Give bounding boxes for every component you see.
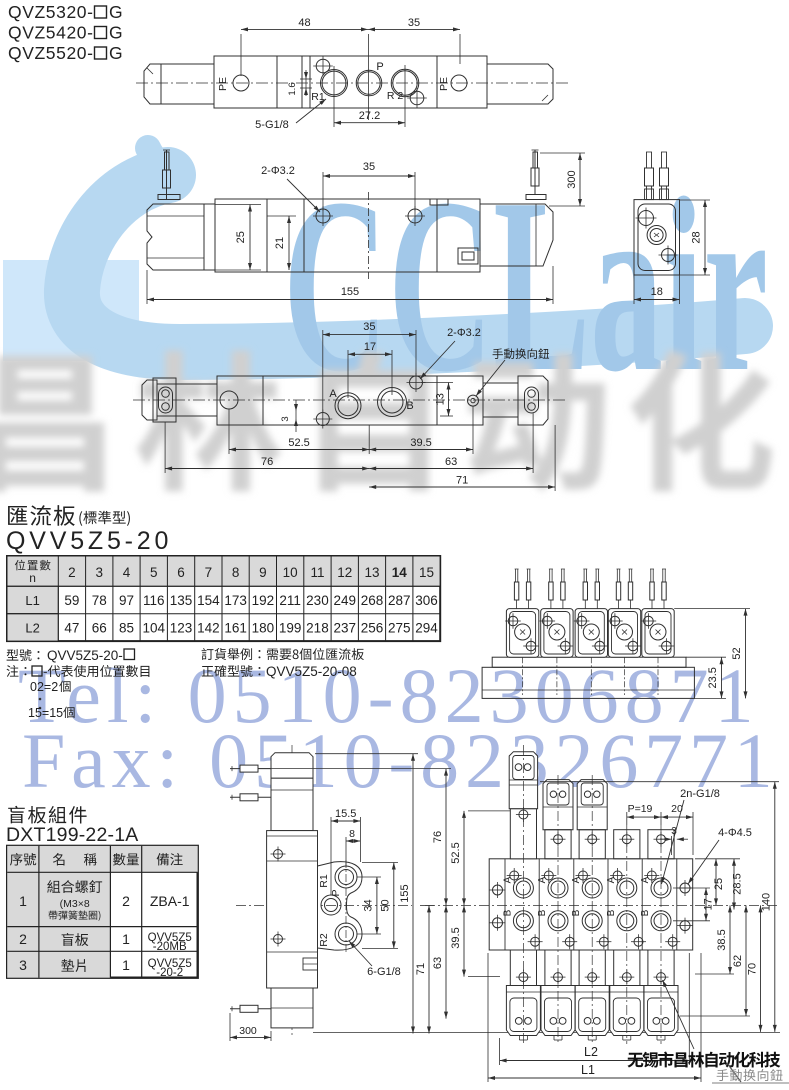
svg-text:76: 76 <box>261 456 273 468</box>
svg-text:A: A <box>502 876 513 883</box>
svg-text:249: 249 <box>333 593 356 608</box>
svg-text:17: 17 <box>364 341 376 353</box>
svg-text:1: 1 <box>122 931 130 947</box>
svg-text:R 2: R 2 <box>387 90 404 102</box>
svg-text:R2: R2 <box>318 933 330 947</box>
svg-text:B: B <box>571 909 582 916</box>
svg-text:2-Φ3.2: 2-Φ3.2 <box>447 327 481 339</box>
svg-text:G: G <box>109 23 123 43</box>
svg-text:173: 173 <box>224 593 247 608</box>
svg-text:35: 35 <box>363 161 375 173</box>
svg-text:180: 180 <box>252 620 275 635</box>
svg-text:1: 1 <box>122 957 130 973</box>
svg-text:ZBA-1: ZBA-1 <box>150 893 190 909</box>
svg-text:39.5: 39.5 <box>450 927 462 948</box>
svg-text:2n-G1/8: 2n-G1/8 <box>680 788 720 800</box>
svg-text:(M3×8: (M3×8 <box>60 898 90 910</box>
svg-text:17: 17 <box>703 898 715 910</box>
svg-text:71: 71 <box>415 963 427 975</box>
svg-text:QVZ5420-: QVZ5420- <box>8 23 94 43</box>
svg-text:275: 275 <box>388 620 411 635</box>
svg-text:G: G <box>109 2 123 22</box>
svg-text:A: A <box>640 876 651 883</box>
svg-text:104: 104 <box>143 620 166 635</box>
svg-text:123: 123 <box>170 620 193 635</box>
svg-text:34: 34 <box>363 899 375 911</box>
svg-text:70: 70 <box>747 963 759 975</box>
svg-text:52: 52 <box>731 647 743 659</box>
svg-text:62: 62 <box>732 955 744 967</box>
svg-text:2: 2 <box>19 931 27 947</box>
svg-text:5-G1/8: 5-G1/8 <box>255 119 289 131</box>
svg-text:P: P <box>330 889 342 896</box>
svg-text:47: 47 <box>64 620 79 635</box>
svg-text:B: B <box>502 909 513 916</box>
svg-text:P: P <box>376 61 383 73</box>
svg-text:B: B <box>537 909 548 916</box>
svg-text:Fax: 0510-82326771: Fax: 0510-82326771 <box>22 717 779 804</box>
svg-text:199: 199 <box>279 620 302 635</box>
svg-text:6-G1/8: 6-G1/8 <box>367 966 401 978</box>
svg-text:78: 78 <box>92 593 107 608</box>
svg-text:8: 8 <box>349 828 355 840</box>
svg-text:230: 230 <box>306 593 329 608</box>
svg-text:-20MB: -20MB <box>153 941 187 953</box>
svg-text:35: 35 <box>408 17 420 29</box>
svg-text:L1: L1 <box>25 593 39 608</box>
svg-text:QVV5Z5-20-: QVV5Z5-20- <box>47 648 123 663</box>
svg-text:63: 63 <box>445 456 457 468</box>
svg-text:14: 14 <box>392 565 408 580</box>
svg-text:211: 211 <box>279 593 301 608</box>
svg-text:4-Φ4.5: 4-Φ4.5 <box>718 827 752 839</box>
svg-text:25: 25 <box>713 878 725 890</box>
svg-text:155: 155 <box>341 286 359 298</box>
svg-text:256: 256 <box>361 620 384 635</box>
svg-text:15.5: 15.5 <box>335 808 356 820</box>
svg-text:21: 21 <box>274 237 286 249</box>
svg-text:7: 7 <box>205 565 213 580</box>
svg-text:140: 140 <box>761 893 773 911</box>
svg-text:154: 154 <box>197 593 220 608</box>
svg-text:48: 48 <box>298 17 310 29</box>
svg-text:35: 35 <box>363 321 375 333</box>
svg-text:G: G <box>109 43 123 63</box>
svg-text:161: 161 <box>224 620 247 635</box>
svg-text:A: A <box>537 876 548 883</box>
svg-text:15: 15 <box>419 565 434 580</box>
svg-text:155: 155 <box>399 884 411 902</box>
svg-text:B: B <box>640 909 651 916</box>
svg-text:02=2: 02=2 <box>30 680 58 694</box>
svg-text:300: 300 <box>566 170 578 188</box>
svg-text:39.5: 39.5 <box>410 437 431 449</box>
svg-text:50: 50 <box>380 899 392 911</box>
svg-text:4: 4 <box>123 565 131 580</box>
svg-text:116: 116 <box>143 593 165 608</box>
svg-text:2: 2 <box>68 565 76 580</box>
svg-text:52.5: 52.5 <box>450 842 462 863</box>
svg-text:A: A <box>329 388 337 400</box>
svg-text:76: 76 <box>432 831 444 843</box>
svg-text:142: 142 <box>197 620 220 635</box>
svg-text:1.6: 1.6 <box>287 82 298 95</box>
svg-text:15=15: 15=15 <box>28 706 63 720</box>
svg-text:85: 85 <box>119 620 134 635</box>
svg-text:52.5: 52.5 <box>288 437 309 449</box>
svg-text:18: 18 <box>651 286 663 298</box>
svg-text:28: 28 <box>691 231 703 243</box>
svg-text:B: B <box>606 909 617 916</box>
svg-text:11: 11 <box>310 565 324 580</box>
svg-text:L2: L2 <box>584 1045 598 1059</box>
svg-text:A: A <box>606 876 617 883</box>
svg-text:71: 71 <box>456 475 468 487</box>
svg-text:PE: PE <box>438 77 450 91</box>
svg-text:QVV5Z5-20: QVV5Z5-20 <box>6 527 172 555</box>
svg-text:DXT199-22-1A: DXT199-22-1A <box>6 824 138 846</box>
svg-text:-20-2: -20-2 <box>156 967 183 979</box>
svg-text:3: 3 <box>19 957 27 973</box>
svg-text:9: 9 <box>259 565 267 580</box>
svg-text:63: 63 <box>432 957 444 969</box>
svg-text:13: 13 <box>364 565 379 580</box>
svg-text:306: 306 <box>415 593 438 608</box>
svg-text:1: 1 <box>19 893 27 909</box>
svg-text:R1: R1 <box>318 874 330 888</box>
svg-text:B: B <box>406 400 413 412</box>
svg-text:66: 66 <box>92 620 107 635</box>
svg-text:38.5: 38.5 <box>716 929 728 950</box>
svg-text:3: 3 <box>95 565 103 580</box>
svg-text:135: 135 <box>170 593 193 608</box>
svg-text:5: 5 <box>150 565 158 580</box>
svg-text:P=19: P=19 <box>628 803 653 815</box>
svg-text:2-Φ3.2: 2-Φ3.2 <box>261 165 295 177</box>
svg-text:A: A <box>571 876 582 883</box>
svg-text:6: 6 <box>177 565 185 580</box>
svg-text:294: 294 <box>415 620 438 635</box>
svg-text:QVZ5320-: QVZ5320- <box>8 2 94 22</box>
svg-text:59: 59 <box>64 593 79 608</box>
svg-text:97: 97 <box>119 593 134 608</box>
svg-text:3: 3 <box>280 416 291 421</box>
svg-text:23.5: 23.5 <box>707 667 719 688</box>
svg-text:192: 192 <box>252 593 275 608</box>
svg-text:8: 8 <box>232 565 240 580</box>
svg-text:13: 13 <box>435 393 447 405</box>
svg-text:L2: L2 <box>25 620 39 635</box>
svg-text:218: 218 <box>306 620 329 635</box>
svg-text:QVZ5520-: QVZ5520- <box>8 43 94 63</box>
svg-text:287: 287 <box>388 593 411 608</box>
svg-text:L1: L1 <box>581 1063 595 1077</box>
svg-text:27.2: 27.2 <box>359 110 380 122</box>
svg-text:300: 300 <box>239 1025 257 1037</box>
svg-text:2: 2 <box>122 893 130 909</box>
svg-text:28.5: 28.5 <box>732 873 744 894</box>
svg-text:PE: PE <box>217 77 229 91</box>
svg-text:n: n <box>29 571 36 585</box>
svg-text:25: 25 <box>235 231 247 243</box>
svg-text:10: 10 <box>283 565 298 580</box>
svg-text:237: 237 <box>333 620 356 635</box>
svg-text:12: 12 <box>337 565 352 580</box>
svg-text:QVV5Z5-20-08: QVV5Z5-20-08 <box>266 664 357 679</box>
svg-text:268: 268 <box>361 593 384 608</box>
